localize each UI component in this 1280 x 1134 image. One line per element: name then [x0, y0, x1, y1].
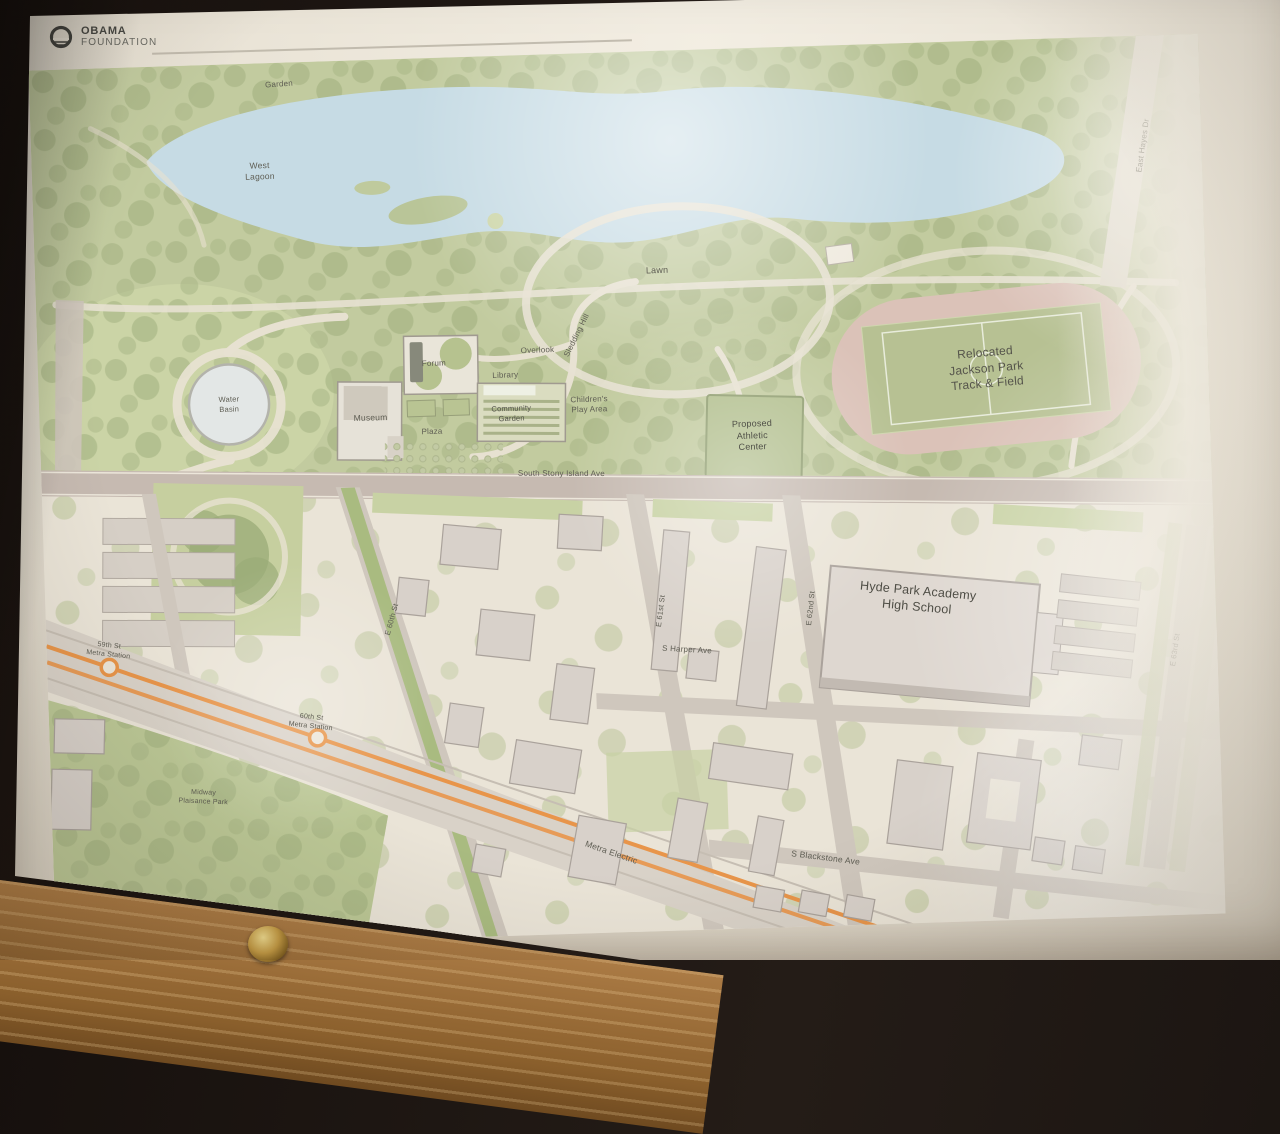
map-artwork [28, 34, 1225, 950]
map-label-midway-plaisance: Midway Plaisance Park [178, 787, 228, 807]
map-label-library: Library [492, 370, 518, 381]
logo-text: OBAMA FOUNDATION [81, 26, 157, 48]
map-label-west-lagoon: West Lagoon [245, 160, 275, 183]
map-label-community-garden: Community Garden [491, 403, 531, 424]
map-label-overlook: Overlook [521, 345, 555, 356]
obama-rising-sun-icon [48, 24, 74, 50]
photo-scene: { "poster": { "logo_line1": "OBAMA", "lo… [0, 0, 1280, 960]
map-label-stony-island-ave: South Stony Island Ave [518, 469, 605, 480]
map-label-childrens-play-area: Children's Play Area [570, 394, 608, 416]
obama-foundation-logo: OBAMA FOUNDATION [48, 24, 157, 50]
map-label-lawn: Lawn [646, 265, 669, 277]
map-label-garden: Garden [265, 79, 294, 91]
logo-line2: FOUNDATION [81, 38, 157, 49]
site-plan-map: Garden West Lagoon East Hayes Dr Lawn Sl… [28, 34, 1225, 950]
map-label-track-field: Relocated Jackson Park Track & Field [947, 342, 1025, 395]
metra-59th-station-marker [101, 659, 117, 675]
map-label-athletic-center: Proposed Athletic Center [732, 418, 773, 454]
easel-knob [248, 926, 288, 962]
map-label-forum: Forum [422, 358, 446, 369]
map-label-water-basin: Water Basin [218, 394, 239, 414]
header-divider [152, 39, 632, 54]
site-plan-poster: OBAMA FOUNDATION [0, 0, 1280, 960]
map-label-plaza: Plaza [421, 427, 442, 438]
logo-line1: OBAMA [81, 26, 157, 38]
map-label-museum: Museum [353, 412, 387, 424]
